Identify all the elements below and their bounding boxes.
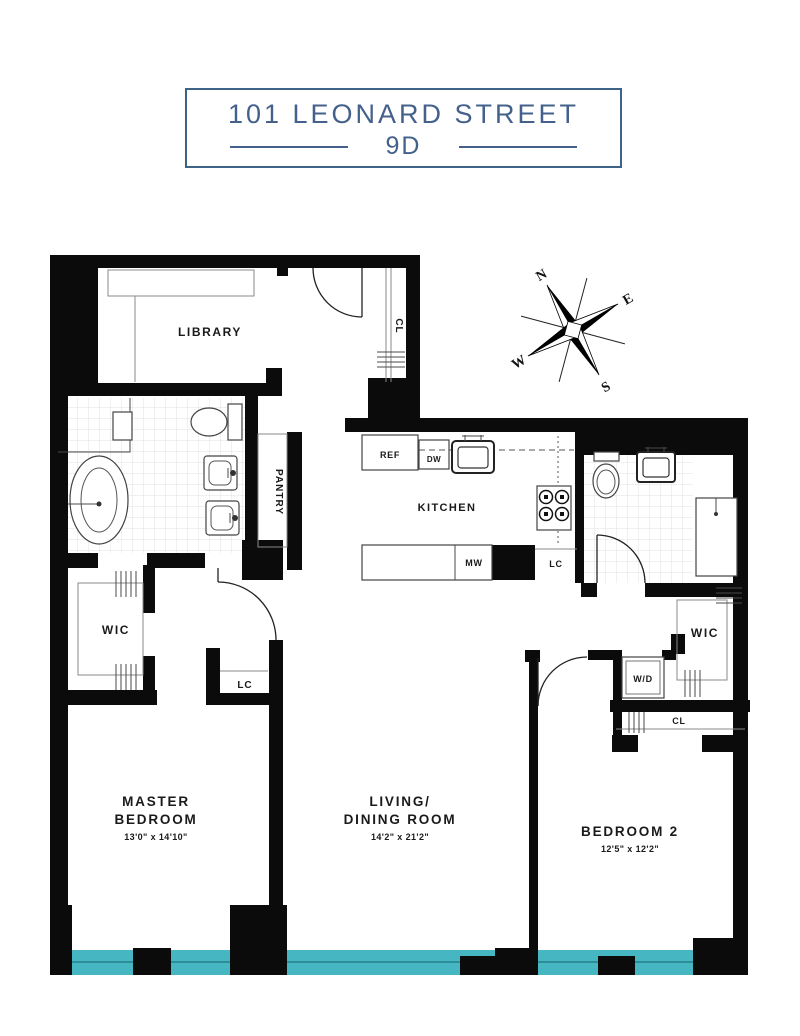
toilet-tank (594, 452, 619, 461)
faucet-icon (230, 470, 236, 476)
toilet (191, 408, 227, 436)
compass-south-label: S (599, 379, 613, 396)
compass-north-label: N (534, 267, 550, 285)
walls (50, 255, 750, 975)
shower-control (113, 412, 132, 440)
compass-west-label: W (509, 353, 529, 373)
living-dining-label-1: LIVING/ (369, 794, 430, 809)
floorplan-page: 101 LEONARD STREET 9D (0, 0, 800, 1036)
entry-closet-label: CL (393, 318, 404, 333)
pantry-label: PANTRY (273, 469, 284, 515)
floor-plan-svg: N E S W LIBRARY CL PANTRY KITCHEN REF DW… (0, 0, 800, 1036)
bedroom2-wic-label: WIC (691, 626, 719, 640)
bedroom2-label: BEDROOM 2 (581, 824, 679, 839)
toilet-tank (228, 404, 242, 440)
bedroom2-door-swing (538, 657, 587, 706)
compass-east-label: E (621, 291, 637, 309)
library-label: LIBRARY (178, 325, 242, 339)
bedroom2-dimensions: 12'5" x 12'2" (601, 844, 659, 854)
master-wic-label: WIC (102, 623, 130, 637)
compass-rose: N E S W (477, 236, 668, 430)
washer-dryer-label: W/D (633, 674, 653, 684)
hall-linen-closet-label: LC (237, 680, 252, 691)
master-bedroom-label-2: BEDROOM (114, 812, 197, 827)
dishwasher-label: DW (427, 455, 441, 464)
kitchen-label: KITCHEN (418, 502, 477, 514)
living-dining-label-2: DINING ROOM (344, 812, 457, 827)
kitchen-linen-closet-label: LC (549, 559, 562, 569)
entry-door-swing (313, 268, 362, 317)
living-dining-dimensions: 14'2" x 21'2" (371, 832, 429, 842)
refrigerator-label: REF (380, 450, 400, 460)
bathtub (70, 456, 128, 544)
bedroom2-closet-label: CL (672, 716, 685, 726)
faucet-icon (232, 515, 238, 521)
master-bedroom-label-1: MASTER (122, 794, 190, 809)
microwave-label: MW (465, 558, 482, 568)
master-bedroom-dimensions: 13'0" x 14'10" (124, 832, 187, 842)
master-hall-door-swing (218, 582, 276, 640)
